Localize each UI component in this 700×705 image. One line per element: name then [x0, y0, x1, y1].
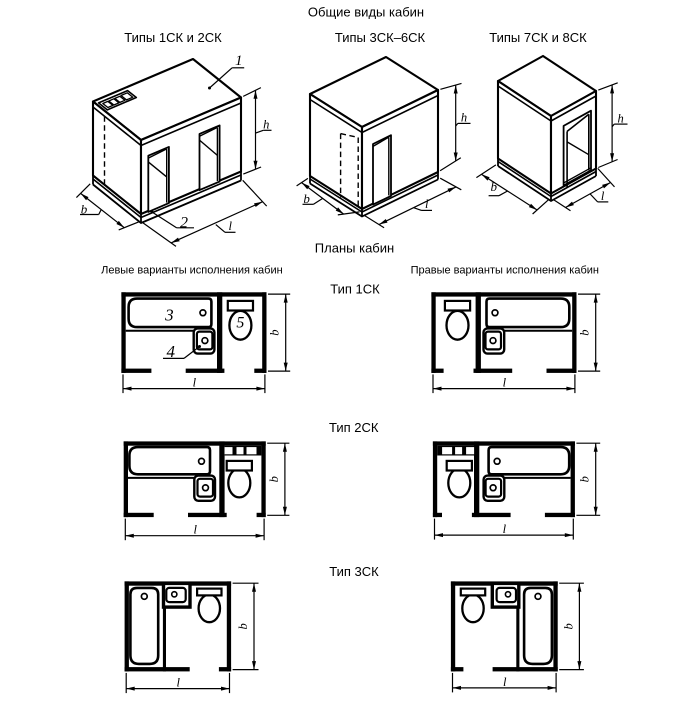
svg-text:h: h — [263, 117, 269, 131]
svg-text:l: l — [503, 522, 507, 536]
svg-text:Типы 7СК и 8СК: Типы 7СК и 8СК — [489, 30, 587, 45]
svg-text:Планы кабин: Планы кабин — [315, 241, 394, 256]
svg-text:b: b — [578, 329, 592, 335]
svg-text:1: 1 — [235, 53, 243, 69]
svg-text:l: l — [193, 376, 197, 390]
svg-text:Тип 1СК: Тип 1СК — [330, 282, 380, 297]
svg-text:Правые варианты исполнения каб: Правые варианты исполнения кабин — [411, 265, 599, 277]
svg-text:l: l — [177, 676, 181, 690]
svg-text:l: l — [503, 376, 507, 390]
svg-text:b: b — [490, 179, 497, 194]
svg-text:2: 2 — [180, 215, 188, 232]
svg-text:b: b — [81, 202, 88, 217]
svg-text:Левые варианты исполнения каби: Левые варианты исполнения кабин — [101, 265, 283, 277]
svg-text:b: b — [303, 191, 310, 206]
svg-text:Типы 1СК и 2СК: Типы 1СК и 2СК — [124, 30, 222, 45]
svg-text:Общие виды кабин: Общие виды кабин — [308, 5, 424, 20]
svg-text:l: l — [425, 197, 429, 211]
svg-text:l: l — [601, 189, 605, 203]
svg-text:Тип 2СК: Тип 2СК — [329, 420, 379, 435]
svg-text:l: l — [229, 219, 233, 233]
svg-text:Тип 3СК: Тип 3СК — [329, 564, 379, 579]
svg-text:3: 3 — [164, 305, 174, 324]
svg-text:l: l — [503, 675, 507, 689]
svg-text:b: b — [578, 476, 592, 482]
svg-text:Типы 3СК–6СК: Типы 3СК–6СК — [335, 30, 426, 45]
svg-text:5: 5 — [236, 314, 244, 331]
svg-text:b: b — [236, 623, 250, 629]
svg-text:b: b — [268, 329, 282, 335]
svg-text:h: h — [461, 111, 467, 125]
svg-text:l: l — [193, 523, 197, 537]
svg-text:b: b — [267, 476, 281, 482]
svg-text:b: b — [561, 623, 575, 629]
svg-text:h: h — [617, 111, 623, 125]
